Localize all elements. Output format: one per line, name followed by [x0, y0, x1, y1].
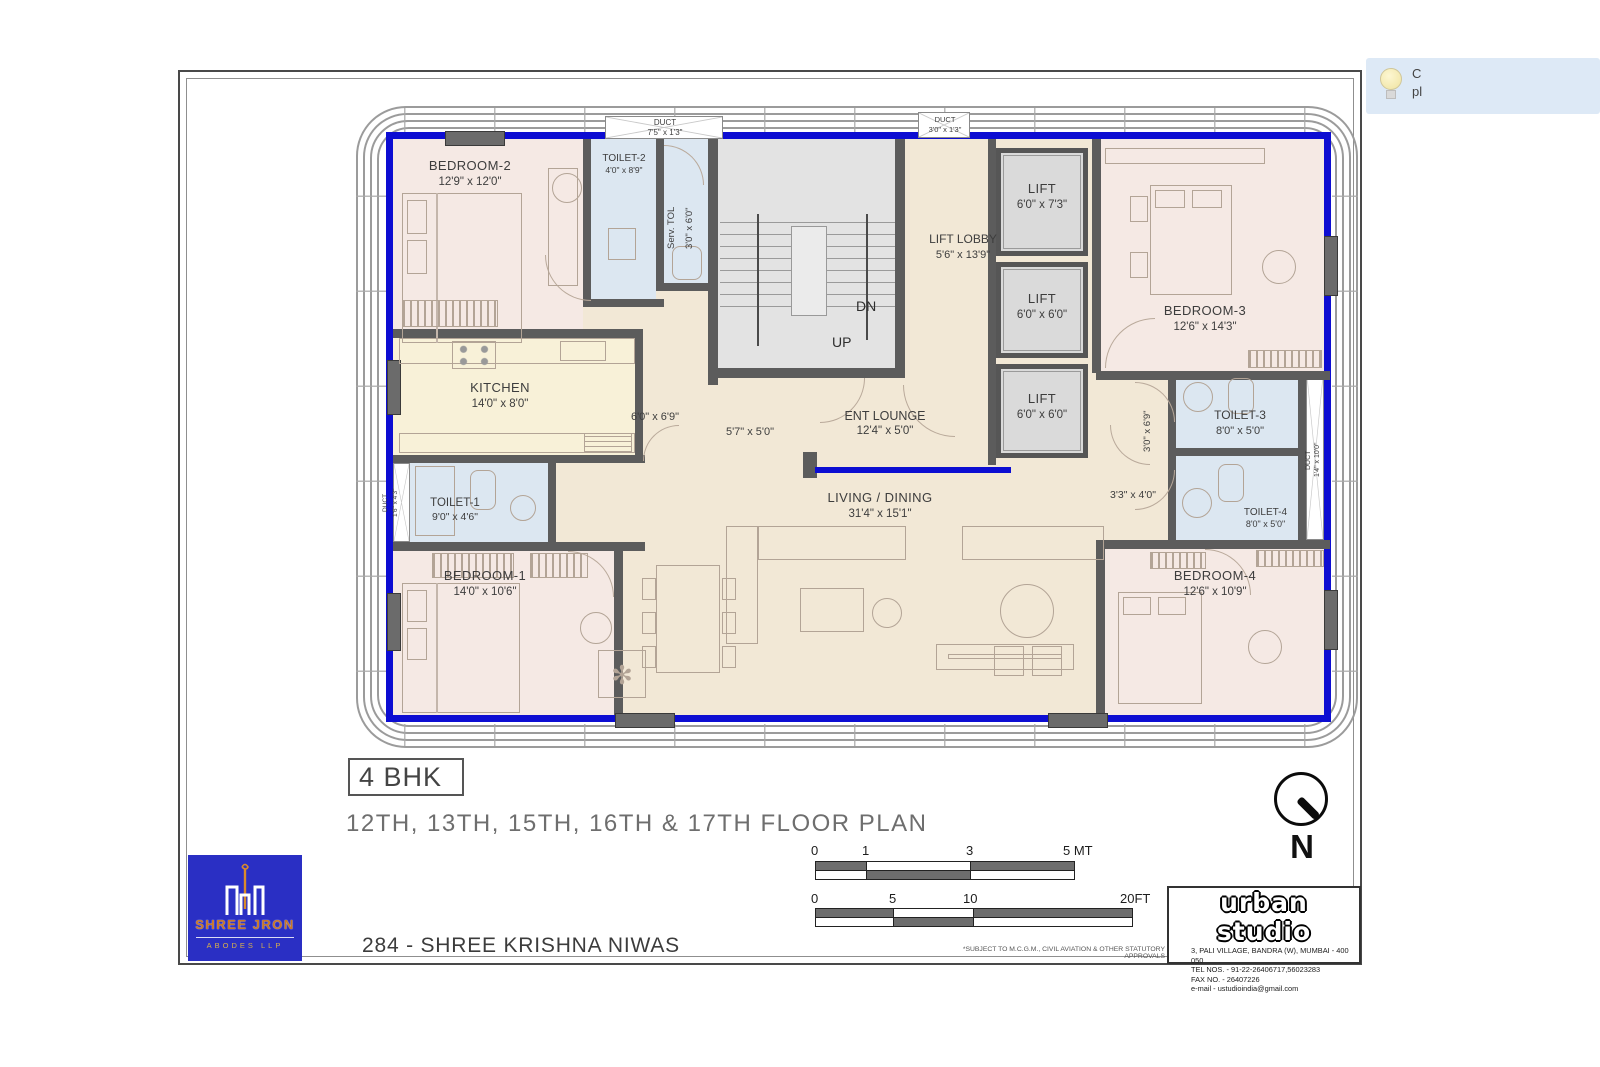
kitchen-sink — [560, 341, 606, 361]
tooltip-text-line1: C — [1412, 66, 1421, 81]
pillow — [407, 200, 427, 234]
architect-name: urban studio — [1169, 888, 1359, 946]
stove — [452, 341, 496, 369]
wall — [393, 455, 645, 463]
pillow — [407, 240, 427, 274]
wall — [1092, 139, 1101, 373]
tv — [948, 654, 1062, 659]
room-name: BEDROOM-4 — [1125, 568, 1305, 585]
project-name: 284 - SHREE KRISHNA NIWAS — [362, 934, 680, 958]
label-toilet4: TOILET-4 8'0" x 5'0" — [1208, 506, 1323, 531]
passage-dims: 6'0" x 6'9" — [610, 410, 700, 424]
label-kitchen: KITCHEN 14'0" x 8'0" — [410, 380, 590, 412]
bed-line — [436, 583, 438, 713]
scale-tick: 5 MT — [1063, 843, 1093, 858]
lift-2: LIFT 6'0" x 6'0" — [996, 262, 1088, 358]
developer-name: SHREE JRON — [188, 917, 302, 932]
room-name: BEDROOM-1 — [390, 568, 580, 585]
lamp — [872, 598, 902, 628]
wall — [988, 139, 996, 465]
lightbulb-base — [1386, 90, 1396, 99]
room-dims: 12'9" x 12'0" — [380, 175, 560, 190]
label-toilet2: TOILET-2 4'0" x 8'9" — [588, 152, 660, 176]
duct-label: DUCT — [606, 118, 724, 128]
scale-tick: 1 — [862, 843, 869, 858]
passage-dims: 5'7" x 5'0" — [705, 425, 795, 439]
scale-tick: 5 — [889, 891, 896, 906]
architect-address: 3, PALI VILLAGE, BANDRA (W), MUMBAI - 40… — [1169, 946, 1359, 965]
unit-type-box: 4 BHK — [348, 758, 464, 796]
room-dims: 5'6" x 13'9" — [903, 248, 1023, 262]
label-toilet3: TOILET-3 8'0" x 5'0" — [1180, 408, 1300, 438]
room-name: BEDROOM-3 — [1115, 303, 1295, 320]
wall — [803, 452, 817, 478]
notification-tooltip[interactable]: C pl — [1366, 58, 1600, 114]
architect-block: urban studio 3, PALI VILLAGE, BANDRA (W)… — [1167, 886, 1361, 964]
label-bedroom2: BEDROOM-2 12'9" x 12'0" — [380, 158, 560, 190]
duct-top-2: DUCT 3'0" x 1'3" — [918, 112, 970, 138]
room-name: LIVING / DINING — [790, 490, 970, 507]
window — [387, 593, 401, 651]
passage-dims: 3'0" x 6'9" — [1142, 396, 1158, 466]
room-name: BEDROOM-2 — [380, 158, 560, 175]
passage-dims: 3'3" x 4'0" — [1088, 489, 1178, 503]
label-serv-toilet-dims: 3'0" x 6'0" — [684, 172, 701, 284]
sofa — [758, 526, 906, 560]
pillow — [407, 628, 427, 660]
chair — [722, 646, 736, 668]
pillow — [1192, 190, 1222, 208]
chair — [1248, 630, 1282, 664]
lightbulb-icon — [1380, 68, 1402, 90]
room-dims: 14'0" x 8'0" — [410, 397, 590, 412]
architect-email: e-mail - ustudioindia@gmail.com — [1169, 984, 1359, 994]
label-living-dining: LIVING / DINING 31'4" x 15'1" — [790, 490, 970, 522]
wall — [635, 338, 643, 463]
basin — [608, 228, 636, 260]
lift-3: LIFT 6'0" x 6'0" — [996, 364, 1088, 458]
wall — [708, 139, 718, 385]
lift-label: LIFT — [1001, 291, 1083, 308]
wall — [1168, 448, 1306, 456]
duct-top-1: DUCT 7'5" x 1'3" — [605, 116, 723, 139]
room-dims: 9'0" x 4'6" — [400, 511, 510, 525]
lift-dims: 6'0" x 6'0" — [1001, 408, 1083, 423]
wall — [393, 542, 645, 551]
basin — [510, 495, 536, 521]
window — [387, 360, 401, 415]
room-dims: 4'0" x 8'9" — [588, 165, 660, 176]
window — [1324, 236, 1338, 296]
wall — [708, 368, 905, 378]
round-table — [1000, 584, 1054, 638]
north-label: N — [1282, 828, 1322, 866]
duct-left-label: DUCT — [382, 466, 392, 540]
wardrobe — [402, 300, 498, 327]
sofa — [962, 526, 1104, 560]
room-name: LIFT LOBBY — [903, 232, 1023, 248]
building-mark-icon — [215, 859, 275, 917]
room-name: TOILET-4 — [1208, 506, 1323, 519]
scale-tick: 3 — [966, 843, 973, 858]
side-table — [1130, 196, 1148, 222]
architect-tel: TEL NOS. - 91-22-26406717,56023283 — [1169, 965, 1359, 975]
stair-landing — [791, 226, 827, 316]
label-lift-lobby: LIFT LOBBY 5'6" x 13'9" — [903, 232, 1023, 262]
unit-type-label: 4 BHK — [350, 760, 462, 793]
room-dims: 14'0" x 10'6" — [390, 585, 580, 600]
disclaimer-note: *SUBJECT TO M.C.G.M., CIVIL AVIATION & O… — [925, 946, 1165, 960]
stair-rail — [866, 214, 868, 340]
duct-label: DUCT — [919, 115, 971, 125]
wall — [1096, 371, 1330, 380]
architect-fax: FAX NO. - 26407226 — [1169, 975, 1359, 985]
stair-up-label: UP — [832, 334, 851, 350]
wall — [583, 299, 664, 307]
stair-rail — [757, 214, 759, 346]
chair — [642, 578, 656, 600]
lift-dims: 6'0" x 6'0" — [1001, 308, 1083, 323]
label-bedroom1: BEDROOM-1 14'0" x 10'6" — [390, 568, 580, 600]
lift-label: LIFT — [1001, 391, 1083, 408]
developer-subtitle: ABODES LLP — [188, 941, 302, 950]
duct-dims: 3'0" x 1'3" — [919, 125, 971, 135]
window — [1324, 590, 1338, 650]
tooltip-text-line2: pl — [1412, 84, 1422, 99]
chair — [642, 612, 656, 634]
scale-tick: 0 — [811, 843, 818, 858]
pillow — [1155, 190, 1185, 208]
wall — [1096, 540, 1330, 549]
room-dims: 31'4" x 15'1" — [790, 507, 970, 522]
label-bedroom4: BEDROOM-4 12'6" x 10'9" — [1125, 568, 1305, 600]
developer-logo: SHREE JRON ABODES LLP — [188, 855, 302, 961]
coffee-table — [800, 588, 864, 632]
room-name: KITCHEN — [410, 380, 590, 397]
chair — [580, 612, 612, 644]
window — [445, 131, 505, 146]
scale-tick: 0 — [811, 891, 818, 906]
room-name: TOILET-1 — [400, 496, 510, 511]
dining-table — [656, 565, 720, 673]
wardrobe — [1256, 550, 1324, 567]
floor-plan-title: 12TH, 13TH, 15TH, 16TH & 17TH FLOOR PLAN — [346, 810, 928, 838]
shelf — [1105, 148, 1265, 164]
scale-tick: 10 — [963, 891, 977, 906]
side-table — [1130, 252, 1148, 278]
glazed-wall-blue — [815, 467, 1011, 473]
logo-divider — [196, 937, 294, 938]
wc — [1218, 464, 1244, 502]
stair-down-label: DN — [856, 298, 876, 314]
chair — [1262, 250, 1296, 284]
room-dims: 12'6" x 10'9" — [1125, 585, 1305, 600]
duct-dims: 7'5" x 1'3" — [606, 128, 724, 138]
floor-plan-page: { "tooltip": { "line1": "C", "line2": "p… — [0, 0, 1600, 1067]
sofa — [726, 526, 758, 644]
room-name: TOILET-3 — [1180, 408, 1300, 424]
room-dims: 8'0" x 5'0" — [1180, 424, 1300, 438]
plant: ✻ — [598, 650, 646, 698]
room-dims: 8'0" x 5'0" — [1208, 519, 1323, 531]
label-toilet1: TOILET-1 9'0" x 4'6" — [400, 496, 510, 525]
room-name: ENT LOUNGE — [820, 408, 950, 424]
lift-label: LIFT — [1001, 181, 1083, 198]
wall — [664, 283, 708, 291]
room-name: TOILET-2 — [588, 152, 660, 165]
room-dims: 12'4" x 5'0" — [820, 424, 950, 439]
appliance — [584, 433, 632, 453]
room-dims: 12'6" x 14'3" — [1115, 320, 1295, 335]
wall — [1168, 373, 1176, 548]
duct-right-label: DUCT — [1305, 400, 1314, 520]
wardrobe — [1248, 350, 1322, 368]
label-bedroom3: BEDROOM-3 12'6" x 14'3" — [1115, 303, 1295, 335]
wall — [548, 463, 556, 545]
duct-right-dims: 1'4" x 10'0" — [1314, 400, 1323, 520]
label-serv-toilet: Serv. TOL — [666, 172, 683, 284]
window — [615, 713, 675, 728]
wardrobe — [1150, 552, 1206, 569]
wall — [1096, 549, 1105, 715]
lift-dims: 6'0" x 7'3" — [1001, 198, 1083, 213]
scale-tick: 20FT — [1120, 891, 1150, 906]
window — [1048, 713, 1108, 728]
label-ent-lounge: ENT LOUNGE 12'4" x 5'0" — [820, 408, 950, 439]
